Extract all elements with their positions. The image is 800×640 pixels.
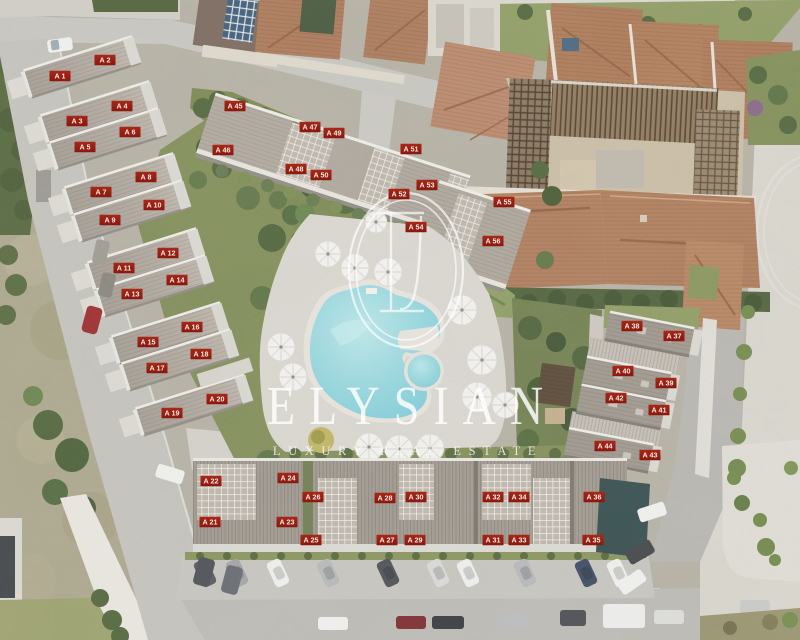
svg-text:A 4: A 4 — [117, 102, 128, 111]
svg-text:A 46: A 46 — [216, 146, 231, 155]
svg-text:A 45: A 45 — [228, 102, 243, 111]
svg-text:A 17: A 17 — [150, 364, 165, 373]
svg-text:A 23: A 23 — [280, 518, 295, 527]
svg-text:A 48: A 48 — [289, 165, 304, 174]
svg-text:A 7: A 7 — [96, 188, 107, 197]
svg-text:LUXURY REAL ESTATE: LUXURY REAL ESTATE — [273, 444, 543, 458]
svg-text:A 55: A 55 — [497, 198, 512, 207]
svg-text:A 39: A 39 — [659, 379, 674, 388]
svg-text:A 56: A 56 — [486, 237, 501, 246]
svg-text:A 21: A 21 — [203, 518, 218, 527]
svg-text:A 19: A 19 — [165, 409, 180, 418]
svg-text:A 43: A 43 — [643, 451, 658, 460]
svg-text:A 42: A 42 — [609, 394, 624, 403]
svg-text:A 31: A 31 — [486, 536, 501, 545]
svg-text:A 51: A 51 — [404, 145, 419, 154]
svg-text:A 24: A 24 — [281, 474, 296, 483]
svg-text:A 53: A 53 — [420, 181, 435, 190]
svg-text:A 49: A 49 — [327, 129, 342, 138]
svg-text:A 2: A 2 — [100, 56, 111, 65]
svg-text:A 3: A 3 — [72, 117, 83, 126]
svg-text:A 37: A 37 — [667, 332, 682, 341]
svg-text:A 1: A 1 — [55, 72, 66, 81]
svg-text:A 47: A 47 — [303, 123, 318, 132]
svg-text:A 54: A 54 — [409, 223, 424, 232]
svg-text:A 15: A 15 — [141, 338, 156, 347]
svg-text:A 13: A 13 — [125, 290, 140, 299]
svg-text:A 26: A 26 — [306, 493, 321, 502]
svg-text:A 11: A 11 — [117, 264, 132, 273]
svg-text:A 35: A 35 — [586, 536, 601, 545]
svg-text:A 18: A 18 — [194, 350, 209, 359]
svg-text:A 30: A 30 — [409, 493, 424, 502]
svg-text:A 8: A 8 — [141, 173, 152, 182]
svg-text:A 50: A 50 — [314, 171, 329, 180]
svg-text:A 34: A 34 — [512, 493, 527, 502]
svg-text:A 38: A 38 — [625, 322, 640, 331]
svg-text:A 9: A 9 — [105, 216, 116, 225]
svg-text:A 20: A 20 — [210, 395, 225, 404]
svg-text:A 5: A 5 — [80, 143, 91, 152]
svg-text:A 52: A 52 — [392, 190, 407, 199]
svg-text:A 36: A 36 — [587, 493, 602, 502]
svg-text:A 27: A 27 — [380, 536, 395, 545]
svg-text:A 14: A 14 — [170, 276, 185, 285]
svg-text:A 41: A 41 — [652, 406, 667, 415]
svg-text:A 32: A 32 — [486, 493, 501, 502]
svg-text:A 29: A 29 — [408, 536, 423, 545]
svg-text:ELYSIAN: ELYSIAN — [267, 375, 557, 436]
svg-text:A 40: A 40 — [616, 367, 631, 376]
svg-text:A 28: A 28 — [378, 494, 393, 503]
svg-text:A 6: A 6 — [125, 128, 136, 137]
svg-text:A 44: A 44 — [598, 442, 613, 451]
svg-text:A 10: A 10 — [147, 201, 162, 210]
svg-text:A 25: A 25 — [304, 536, 319, 545]
svg-text:A 12: A 12 — [161, 249, 176, 258]
svg-text:A 16: A 16 — [185, 323, 200, 332]
svg-text:A 33: A 33 — [512, 536, 527, 545]
svg-text:A 22: A 22 — [204, 477, 219, 486]
